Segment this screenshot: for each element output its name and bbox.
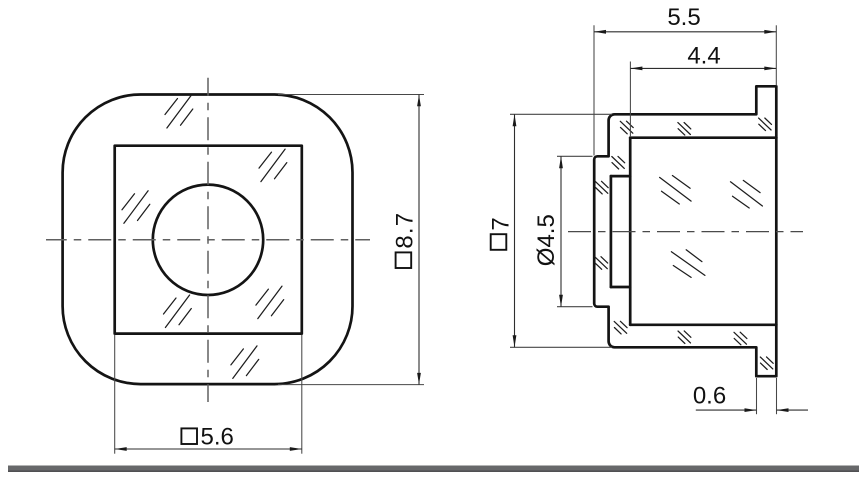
svg-text:4.4: 4.4 xyxy=(687,43,720,70)
svg-text:5.6: 5.6 xyxy=(201,423,234,450)
svg-text:5.5: 5.5 xyxy=(667,4,700,31)
svg-text:7: 7 xyxy=(487,217,514,230)
svg-text:Ø4.5: Ø4.5 xyxy=(533,214,560,266)
svg-text:8.7: 8.7 xyxy=(392,212,419,249)
svg-text:0.6: 0.6 xyxy=(693,382,726,409)
